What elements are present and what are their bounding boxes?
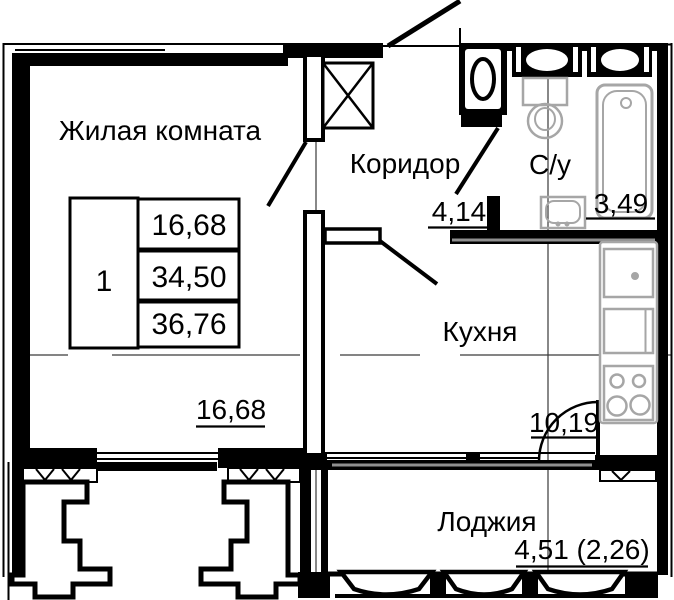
- table-living-area: 16,68: [151, 209, 226, 242]
- divider-wall-main: [305, 212, 323, 455]
- living-room-label: Жилая комната: [59, 115, 262, 146]
- sink-tap: [565, 222, 569, 226]
- living-room-door-leaf: [268, 142, 306, 206]
- bathroom-door-leaf: [456, 128, 498, 194]
- balustrade-post: [522, 572, 538, 596]
- vent-shaft-duct: [601, 49, 639, 71]
- balustrade-post: [430, 572, 446, 596]
- loggia-left-wall: [321, 468, 328, 575]
- stove-burner: [633, 375, 645, 387]
- kitchen-area: 10,19: [529, 407, 599, 438]
- facade-elements: [12, 468, 658, 598]
- top-wall-corridor: [283, 43, 383, 58]
- kitchen-door-leaf: [380, 241, 437, 284]
- top-wall-living: [12, 53, 288, 66]
- sink-basin: [546, 201, 580, 223]
- bottom-wall-left-pier: [12, 448, 97, 468]
- kitchen-loggia-wall-right: [595, 455, 657, 470]
- corridor-area: 4,14: [432, 196, 487, 227]
- bathroom-label: С/у: [529, 149, 571, 180]
- bathroom-area: 3,49: [594, 188, 649, 219]
- washing-machine-drum: [472, 59, 494, 99]
- toilet-icon: [523, 78, 567, 105]
- balustrade-scallop: [341, 572, 432, 595]
- kitchen-sink-unit: [604, 249, 653, 297]
- vent-slit: [516, 47, 521, 72]
- kitchen-label: Кухня: [443, 316, 518, 347]
- bathtub-drain: [621, 98, 631, 108]
- loggia-area: 4,51 (2,26): [514, 534, 649, 565]
- facade-pier: [300, 468, 311, 575]
- divider-wall-upper: [305, 55, 323, 140]
- left-wall: [12, 53, 30, 468]
- balustrade-scallop: [444, 572, 524, 595]
- stove-burner: [631, 396, 650, 415]
- facade-step-right: [201, 482, 300, 597]
- right-wall: [657, 43, 668, 575]
- facade-step-left: [12, 482, 110, 597]
- entrance-door-leaf: [388, 1, 460, 46]
- table-total-area: 36,76: [151, 308, 226, 341]
- sink-tap: [556, 222, 560, 226]
- bottom-wall-right-pier: [218, 448, 308, 468]
- living-room-area: 16,68: [196, 394, 266, 425]
- table-apartment-area: 34,50: [151, 261, 226, 294]
- toilet-bowl: [528, 104, 562, 138]
- kitchen-fixtures: [600, 242, 657, 423]
- loggia-corner-block: [298, 572, 330, 598]
- toilet-bowl-inner: [535, 108, 555, 130]
- hatch-marks: [240, 469, 284, 480]
- bathroom-door-jamb: [461, 114, 502, 127]
- vent-slit: [591, 47, 596, 72]
- balustrade-scallop: [536, 572, 624, 595]
- corridor-label: Коридор: [350, 148, 461, 179]
- floor-plan: 1 16,68 34,50 36,76 Жилая комната Коридо…: [0, 0, 674, 600]
- table-rooms-count: 1: [96, 265, 113, 298]
- kitchen-entry-stub-wall: [325, 229, 380, 243]
- stove-burner: [611, 375, 624, 388]
- vent-slit: [573, 47, 578, 72]
- vent-slit: [644, 47, 649, 72]
- hatch-marks: [612, 471, 630, 480]
- floor-plan-drawing: 1 16,68 34,50 36,76 Жилая комната Коридо…: [0, 0, 674, 600]
- hatch-marks: [36, 469, 80, 480]
- loggia-label: Лоджия: [437, 506, 536, 537]
- windows: [97, 453, 595, 459]
- kitchen-sink-drain: [632, 273, 639, 280]
- vent-shaft-duct: [526, 49, 568, 71]
- living-window-sill: [97, 462, 217, 471]
- stove-burner: [608, 397, 627, 416]
